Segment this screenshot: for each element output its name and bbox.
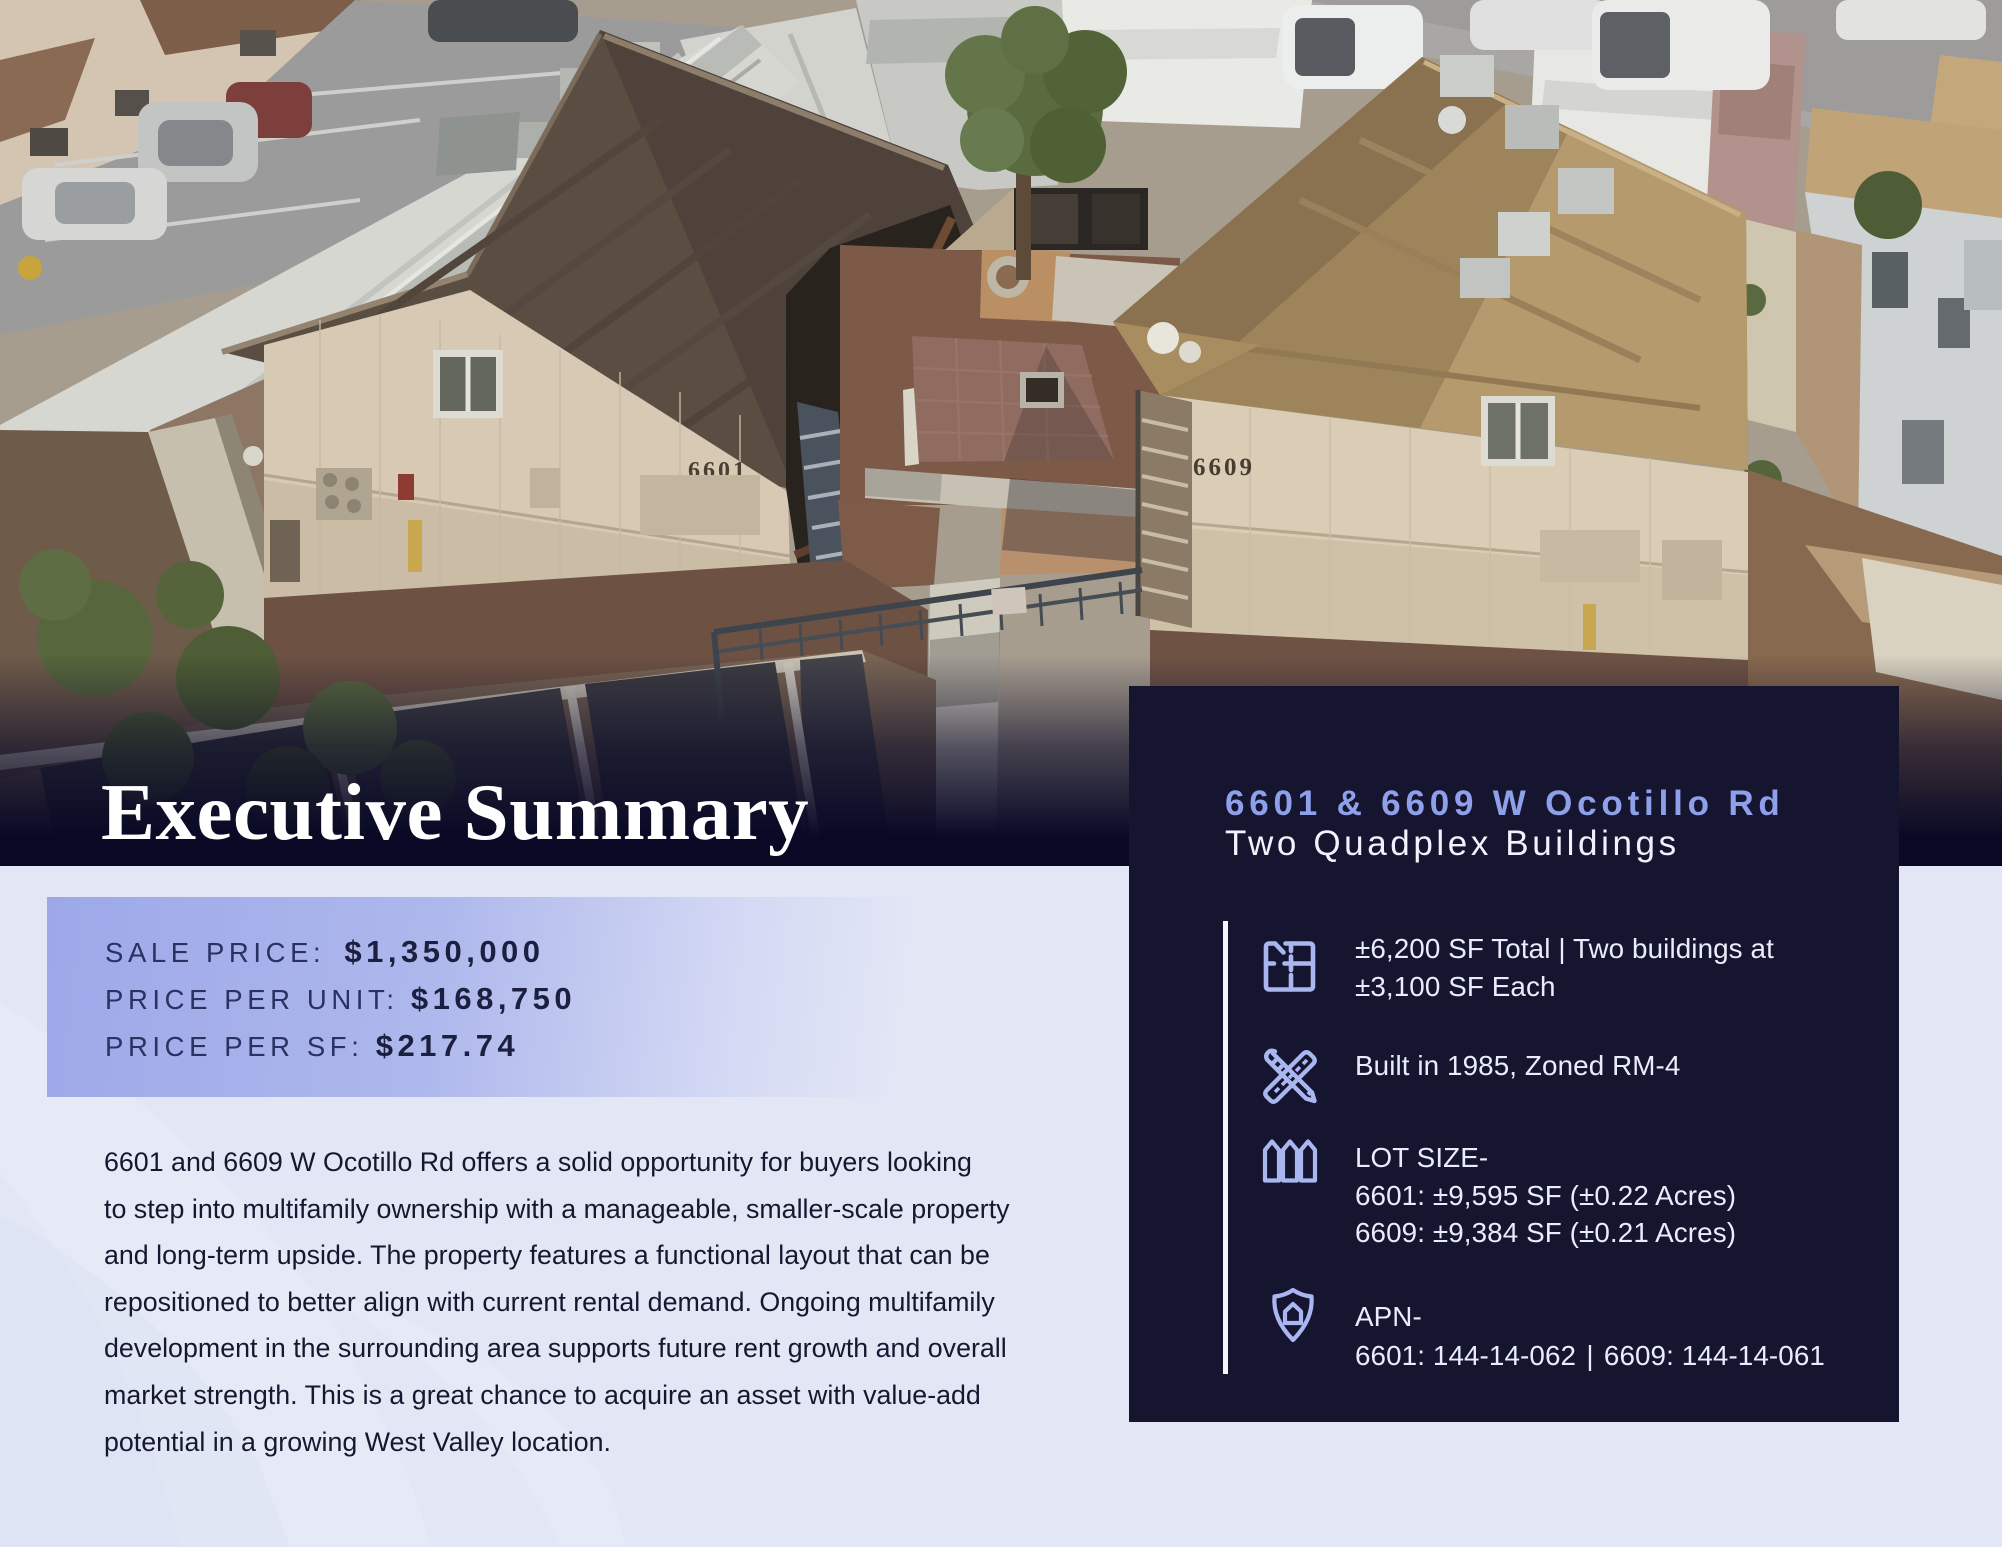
svg-text:6609: 6609 bbox=[1193, 454, 1255, 481]
